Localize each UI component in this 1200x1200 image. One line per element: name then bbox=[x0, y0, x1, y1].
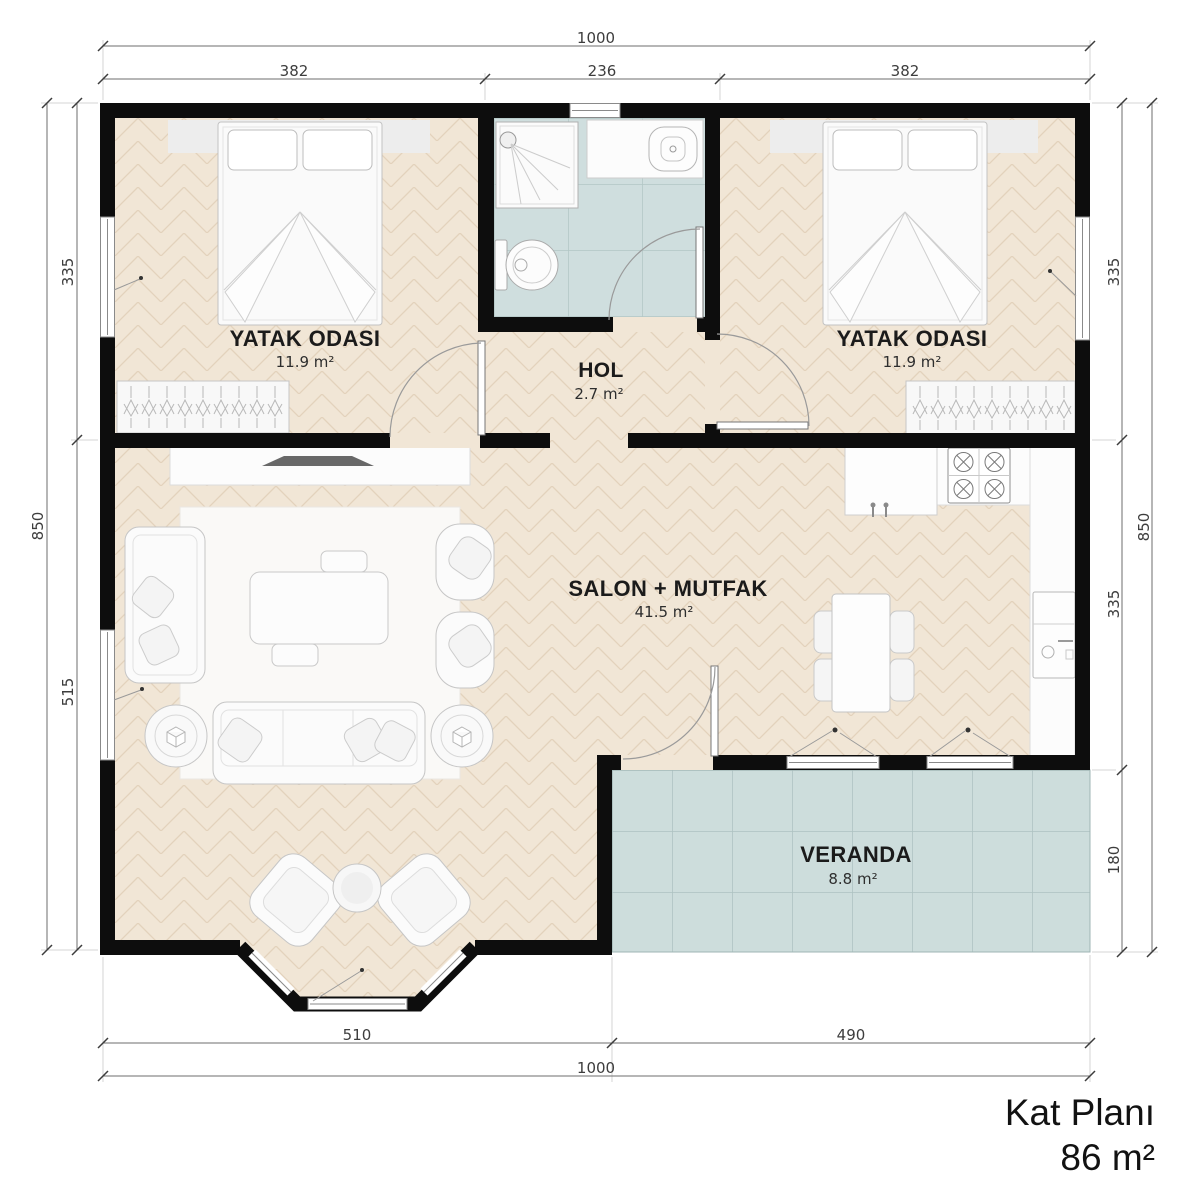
dining-set bbox=[814, 594, 914, 712]
wall-veranda-left bbox=[597, 755, 612, 955]
dining-chair bbox=[890, 611, 914, 653]
room-area-living-kitchen: 41.5 m² bbox=[635, 603, 694, 621]
dim-left-seg-2: 515 bbox=[59, 678, 77, 707]
window-veranda-a bbox=[787, 757, 879, 769]
plan-total-area: 86 m² bbox=[855, 1135, 1155, 1180]
stove bbox=[948, 448, 1010, 503]
kitchen-sink-cabinet bbox=[845, 445, 937, 517]
wall-salon-bottom-left bbox=[100, 940, 240, 955]
window-salon-left bbox=[101, 630, 115, 760]
window-bay-center bbox=[308, 999, 407, 1010]
wall-bedrooms-bottom-a bbox=[100, 433, 390, 448]
dining-table bbox=[832, 594, 890, 712]
pillow bbox=[908, 130, 977, 170]
toilet bbox=[495, 240, 558, 290]
dim-right-seg-1: 335 bbox=[1105, 258, 1123, 287]
dim-left-overall: 850 bbox=[29, 512, 47, 541]
dining-chair bbox=[890, 659, 914, 701]
double-bed bbox=[218, 122, 382, 325]
armchair bbox=[436, 524, 495, 600]
refrigerator bbox=[1033, 592, 1075, 678]
window-bedroom-left bbox=[101, 217, 115, 337]
double-bed bbox=[823, 122, 987, 325]
bay-round-table bbox=[333, 864, 381, 912]
dim-bottom-seg-2: 490 bbox=[837, 1026, 866, 1044]
room-label-bedroom-right: YATAK ODASI bbox=[837, 326, 988, 352]
pillow bbox=[228, 130, 297, 170]
window-veranda-b bbox=[927, 757, 1013, 769]
wall-bath-left bbox=[478, 118, 494, 332]
title-block: Kat Planı 86 m² bbox=[855, 1090, 1155, 1180]
dim-right-seg-2: 335 bbox=[1105, 590, 1123, 619]
room-label-hall: HOL bbox=[578, 359, 624, 383]
tv-unit bbox=[170, 447, 470, 485]
dim-right-overall: 850 bbox=[1135, 513, 1153, 542]
armchair bbox=[436, 612, 495, 688]
vanity-sink bbox=[587, 120, 703, 178]
dim-top-overall: 1000 bbox=[577, 29, 615, 47]
sofa-left bbox=[125, 527, 205, 683]
room-area-veranda: 8.8 m² bbox=[828, 870, 877, 888]
dim-right-seg-3: 180 bbox=[1105, 846, 1123, 875]
room-label-living-kitchen: SALON + MUTFAK bbox=[568, 576, 767, 602]
window-bathroom-top bbox=[570, 104, 620, 118]
side-table bbox=[431, 705, 493, 767]
room-label-bedroom-left: YATAK ODASI bbox=[230, 326, 381, 352]
dim-top-seg-1: 382 bbox=[280, 62, 309, 80]
room-area-bedroom-left: 11.9 m² bbox=[276, 353, 335, 371]
dim-top-seg-3: 382 bbox=[891, 62, 920, 80]
dim-bottom-seg-1: 510 bbox=[343, 1026, 372, 1044]
window-bedroom-right bbox=[1076, 217, 1090, 340]
dim-bottom-overall: 1000 bbox=[577, 1059, 615, 1077]
dim-left-seg-1: 335 bbox=[59, 258, 77, 287]
wall-salon-bottom-right bbox=[475, 940, 612, 955]
side-table bbox=[145, 705, 207, 767]
wardrobe bbox=[117, 381, 289, 433]
sofa-bottom bbox=[213, 702, 425, 784]
floor-plan-page: YATAK ODASI 11.9 m² YATAK ODASI 11.9 m² … bbox=[0, 0, 1200, 1200]
pillow bbox=[303, 130, 372, 170]
room-area-hall: 2.7 m² bbox=[574, 385, 623, 403]
wardrobe bbox=[906, 381, 1075, 436]
pillow bbox=[833, 130, 902, 170]
room-area-bedroom-right: 11.9 m² bbox=[883, 353, 942, 371]
shower bbox=[496, 122, 578, 208]
wall-bedrooms-bottom-b bbox=[479, 433, 550, 448]
dim-top-seg-2: 236 bbox=[588, 62, 617, 80]
room-label-veranda: VERANDA bbox=[800, 842, 912, 868]
wall-bedrooms-bottom-c bbox=[628, 433, 1090, 448]
plan-title: Kat Planı bbox=[855, 1090, 1155, 1135]
